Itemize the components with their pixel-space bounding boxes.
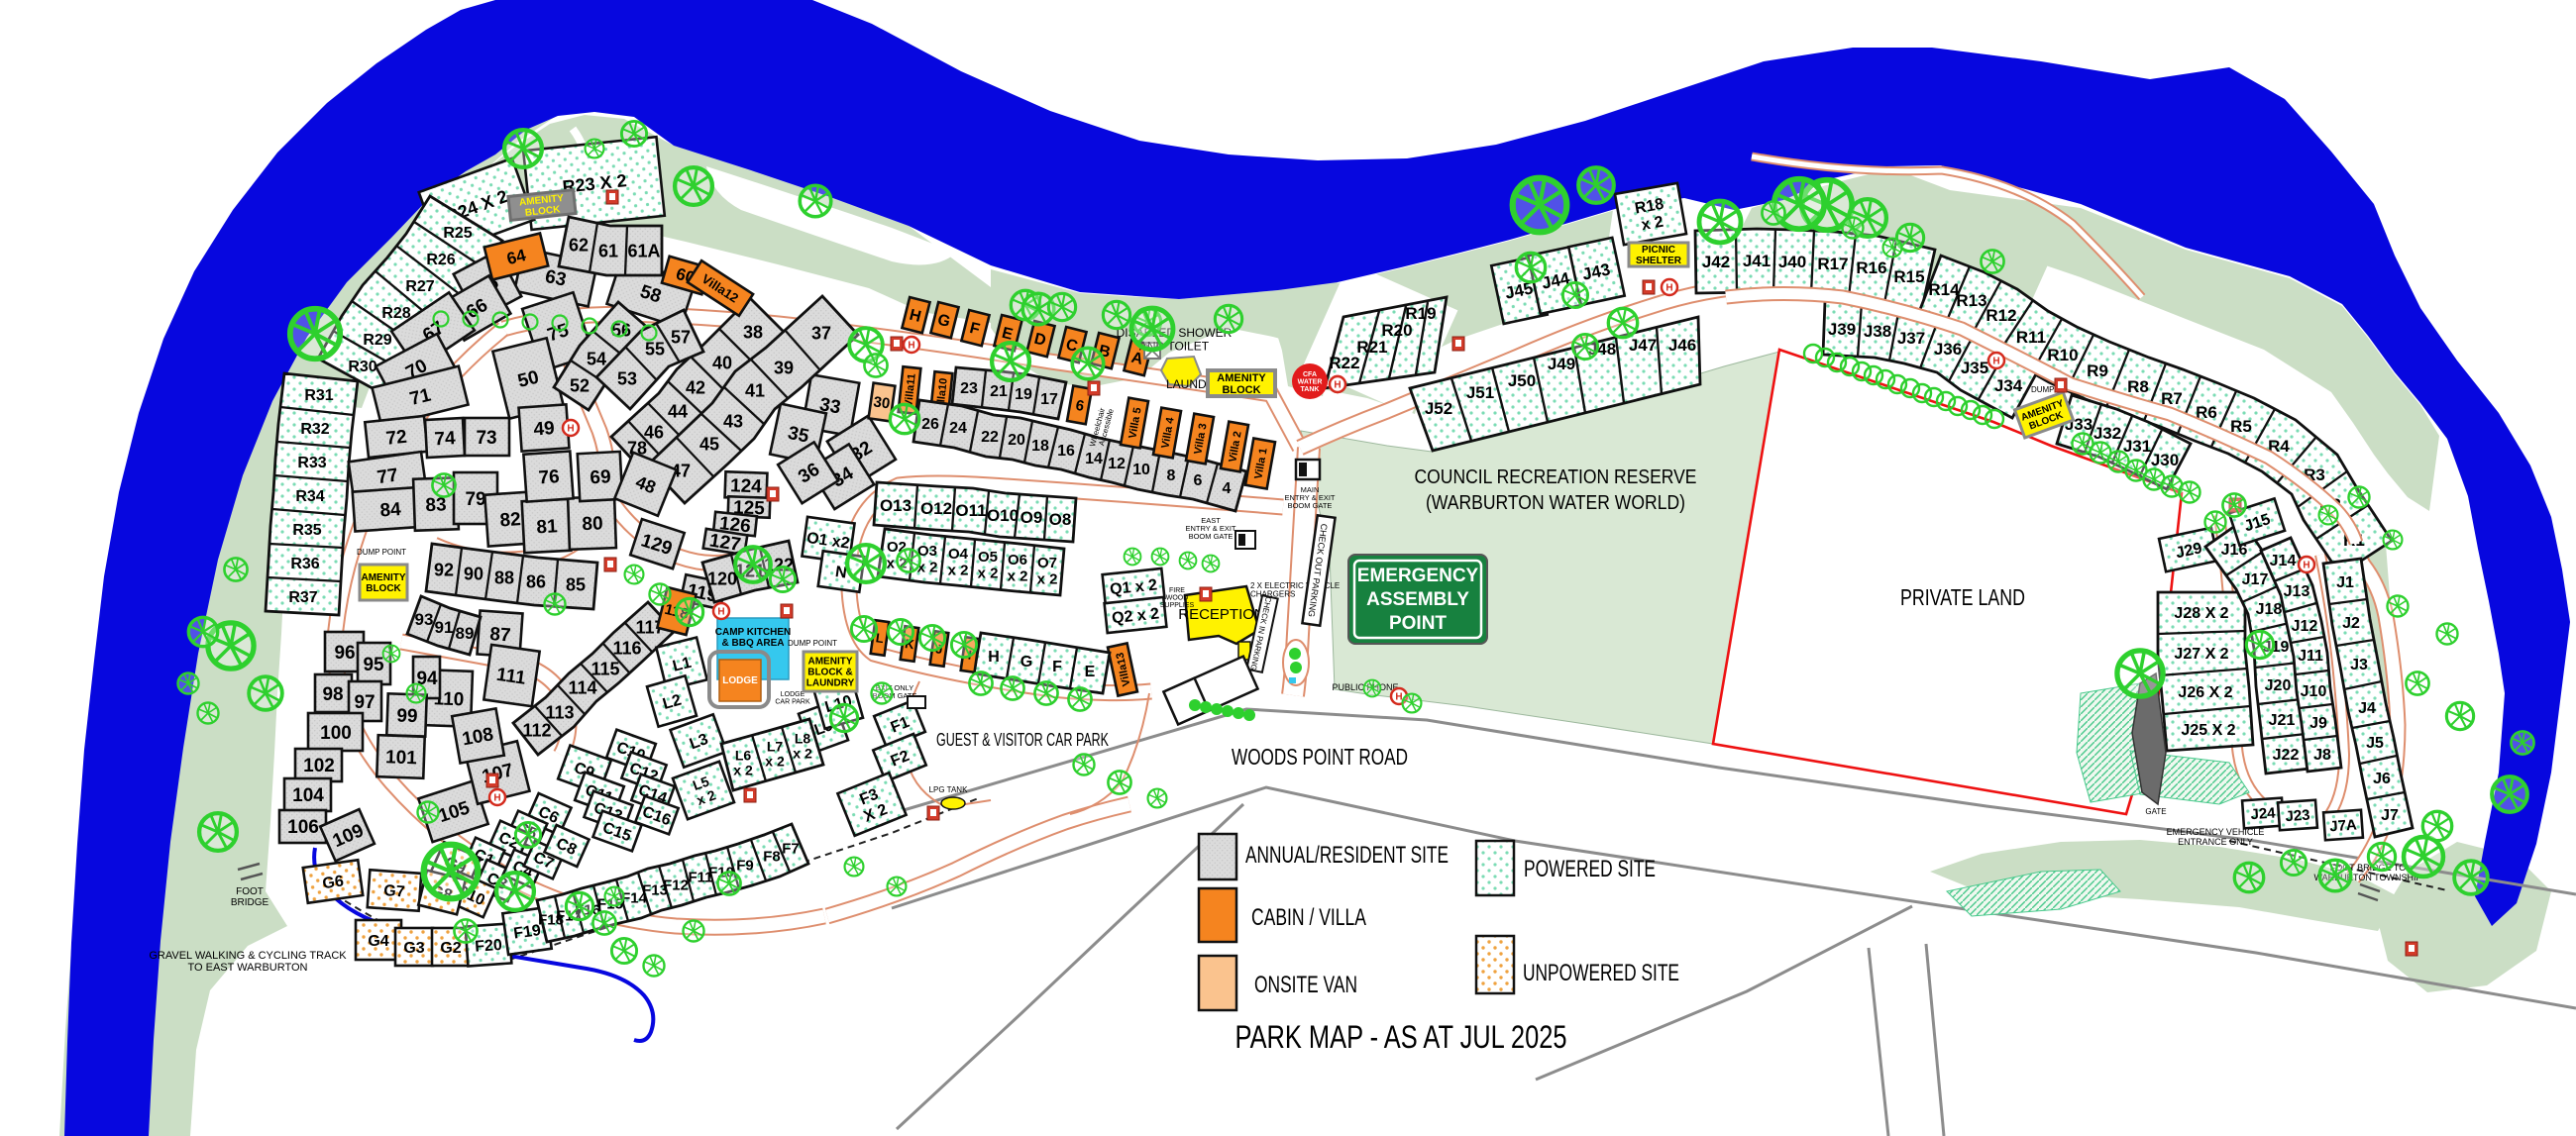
svg-text:112: 112 (522, 721, 551, 741)
svg-text:O13: O13 (880, 496, 912, 515)
svg-text:88: 88 (494, 568, 514, 588)
svg-text:G7: G7 (383, 882, 406, 900)
svg-text:74: 74 (434, 428, 457, 450)
svg-text:R17: R17 (1817, 255, 1848, 273)
svg-text:R34: R34 (295, 488, 324, 505)
svg-text:82: 82 (499, 509, 522, 531)
svg-text:G2: G2 (440, 940, 461, 957)
svg-text:76: 76 (538, 466, 561, 488)
svg-text:J20: J20 (2265, 677, 2292, 694)
svg-text:AMENITYBLOCK: AMENITYBLOCK (519, 193, 566, 220)
svg-text:J21: J21 (2269, 712, 2296, 729)
svg-text:G4: G4 (368, 933, 388, 950)
svg-text:J50: J50 (1508, 371, 1536, 390)
svg-text:61: 61 (598, 242, 618, 261)
svg-text:J24: J24 (2250, 804, 2277, 823)
svg-text:R11: R11 (2016, 328, 2046, 347)
svg-text:J32: J32 (2093, 424, 2121, 443)
svg-text:92: 92 (434, 561, 454, 580)
svg-text:GATE: GATE (2145, 807, 2166, 816)
svg-text:WOODS POINT ROAD: WOODS POINT ROAD (1232, 744, 1408, 770)
svg-text:87: 87 (489, 624, 512, 646)
svg-text:EMERGENCY VEHICLE: EMERGENCY VEHICLE (2167, 827, 2265, 837)
svg-text:12: 12 (1108, 456, 1126, 472)
svg-text:R19: R19 (1405, 304, 1436, 323)
svg-text:G: G (1020, 654, 1032, 671)
svg-text:J27 X 2: J27 X 2 (2174, 646, 2228, 663)
svg-text:O7x 2: O7x 2 (1037, 555, 1058, 588)
svg-text:ASSEMBLY: ASSEMBLY (1366, 589, 1469, 610)
svg-text:23: 23 (960, 380, 978, 397)
svg-text:21: 21 (990, 383, 1008, 400)
svg-text:G3: G3 (403, 940, 424, 957)
svg-text:J6: J6 (2373, 771, 2391, 787)
svg-text:J34: J34 (1994, 376, 2023, 395)
svg-text:H: H (567, 424, 574, 435)
svg-text:BOOM GATE: BOOM GATE (1288, 501, 1333, 510)
svg-text:J12: J12 (2292, 618, 2318, 635)
svg-text:J51: J51 (1466, 383, 1494, 402)
svg-text:J7A: J7A (2329, 816, 2358, 835)
svg-text:89: 89 (456, 624, 475, 643)
svg-text:F20: F20 (475, 937, 503, 956)
svg-text:J4: J4 (2358, 700, 2376, 717)
svg-text:44: 44 (668, 402, 688, 422)
svg-text:(WARBURTON WATER WORLD): (WARBURTON WATER WORLD) (1426, 492, 1685, 514)
svg-text:POWERED SITE: POWERED SITE (1524, 856, 1656, 882)
svg-text:79: 79 (465, 489, 485, 510)
svg-text:O10: O10 (987, 506, 1019, 525)
svg-text:J2: J2 (2342, 615, 2360, 632)
svg-text:38: 38 (743, 323, 763, 343)
svg-text:O5x 2: O5x 2 (978, 549, 999, 582)
svg-text:115: 115 (590, 660, 619, 679)
svg-text:19: 19 (1015, 386, 1032, 403)
svg-text:49: 49 (533, 418, 556, 440)
svg-text:J1: J1 (2336, 574, 2354, 591)
svg-text:R21: R21 (1356, 338, 1387, 357)
svg-text:81: 81 (536, 516, 559, 538)
svg-text:LPG TANK: LPG TANK (929, 785, 968, 794)
svg-text:FIRE: FIRE (1169, 587, 1185, 594)
svg-text:O11: O11 (955, 501, 986, 520)
svg-text:84: 84 (379, 499, 402, 521)
svg-text:J10: J10 (2301, 683, 2327, 700)
svg-text:61A: 61A (627, 242, 660, 261)
svg-text:WOOD: WOOD (1166, 594, 1189, 601)
svg-text:J37: J37 (1897, 329, 1925, 348)
svg-text:TO EAST WARBURTON: TO EAST WARBURTON (187, 962, 307, 974)
svg-text:20: 20 (1008, 432, 1025, 449)
svg-text:J47: J47 (1629, 336, 1657, 355)
svg-text:R14: R14 (1928, 280, 1960, 299)
svg-text:63: 63 (543, 266, 568, 291)
svg-text:J52: J52 (1425, 399, 1452, 418)
svg-text:R35: R35 (292, 522, 321, 539)
svg-text:18: 18 (1031, 438, 1049, 455)
svg-text:43: 43 (723, 412, 743, 432)
svg-text:R27: R27 (405, 278, 434, 295)
svg-text:H: H (2303, 561, 2309, 571)
svg-text:R8: R8 (2127, 377, 2149, 396)
svg-text:G6: G6 (321, 873, 345, 892)
svg-text:CAR PARK: CAR PARK (775, 699, 810, 706)
svg-text:99: 99 (396, 705, 418, 727)
svg-text:AMENITYBLOCK: AMENITYBLOCK (1217, 372, 1266, 396)
svg-text:J35: J35 (1961, 359, 1988, 377)
svg-text:53: 53 (617, 369, 637, 389)
svg-text:GUEST & VISITOR CAR PARK: GUEST & VISITOR CAR PARK (936, 730, 1109, 750)
svg-text:91: 91 (435, 618, 454, 637)
svg-text:77: 77 (376, 465, 399, 488)
svg-text:R26: R26 (426, 252, 455, 268)
svg-text:J7: J7 (2381, 807, 2399, 824)
svg-text:FOOT: FOOT (236, 886, 264, 897)
svg-text:J11: J11 (2298, 648, 2323, 665)
svg-text:J25 X 2: J25 X 2 (2181, 722, 2235, 739)
svg-text:BRIDGE: BRIDGE (231, 897, 269, 908)
svg-text:J26 X 2: J26 X 2 (2178, 684, 2232, 701)
svg-text:54: 54 (587, 350, 606, 369)
svg-text:O12: O12 (920, 499, 952, 518)
svg-text:F9: F9 (736, 857, 754, 874)
svg-text:LODGE: LODGE (781, 691, 805, 698)
svg-text:57: 57 (671, 328, 691, 348)
svg-text:95: 95 (363, 655, 384, 675)
svg-text:DUMP POINT: DUMP POINT (788, 639, 837, 648)
svg-text:PRIVATE LAND: PRIVATE LAND (1900, 584, 2025, 610)
svg-text:80: 80 (582, 513, 603, 535)
svg-text:J40: J40 (1778, 253, 1806, 271)
svg-text:ANNUAL/RESIDENT SITE: ANNUAL/RESIDENT SITE (1245, 842, 1449, 869)
svg-text:E: E (1085, 664, 1096, 680)
svg-text:R33: R33 (297, 455, 326, 471)
svg-text:J36: J36 (1934, 340, 1962, 359)
svg-text:69: 69 (590, 466, 611, 488)
svg-text:F8: F8 (763, 848, 781, 865)
svg-text:J42: J42 (1702, 253, 1730, 271)
svg-text:86: 86 (526, 572, 546, 592)
svg-text:AMENITYBLOCK &LAUNDRY: AMENITYBLOCK &LAUNDRY (806, 657, 855, 689)
svg-text:100: 100 (320, 723, 352, 744)
svg-text:R16: R16 (1856, 258, 1886, 277)
svg-text:124: 124 (730, 475, 763, 497)
svg-text:113: 113 (545, 703, 574, 723)
svg-text:106: 106 (287, 817, 319, 838)
svg-text:J30: J30 (2151, 451, 2179, 469)
svg-text:H: H (988, 649, 1000, 666)
svg-text:SUPPLIES: SUPPLIES (1160, 602, 1195, 609)
svg-text:H: H (908, 341, 914, 352)
svg-text:J17: J17 (2242, 571, 2269, 588)
svg-text:R22: R22 (1329, 354, 1359, 372)
svg-text:101: 101 (385, 747, 418, 769)
svg-text:R29: R29 (363, 332, 391, 349)
svg-text:ONSITE VAN: ONSITE VAN (1254, 972, 1357, 998)
svg-text:H: H (1665, 283, 1672, 294)
svg-text:R20: R20 (1381, 321, 1412, 340)
svg-text:AMENITYBLOCK: AMENITYBLOCK (362, 572, 406, 594)
svg-text:R36: R36 (290, 556, 319, 572)
svg-text:R13: R13 (1956, 291, 1986, 310)
svg-text:104: 104 (292, 785, 324, 806)
svg-text:45: 45 (699, 435, 719, 455)
svg-text:F12: F12 (663, 877, 689, 893)
svg-text:93: 93 (415, 610, 434, 629)
svg-text:62: 62 (569, 236, 589, 256)
svg-text:J31: J31 (2123, 437, 2151, 456)
svg-text:30: 30 (872, 393, 891, 412)
svg-text:102: 102 (303, 756, 335, 776)
svg-text:O6x 2: O6x 2 (1008, 552, 1028, 585)
svg-text:UNPOWERED SITE: UNPOWERED SITE (1523, 960, 1679, 986)
svg-text:90: 90 (464, 565, 483, 584)
svg-text:4: 4 (1223, 480, 1232, 497)
svg-text:55: 55 (645, 340, 665, 360)
svg-text:H: H (1334, 380, 1341, 391)
svg-text:J46: J46 (1668, 336, 1696, 355)
svg-text:J8: J8 (2313, 747, 2331, 764)
svg-text:R25: R25 (443, 225, 472, 242)
svg-text:116: 116 (612, 639, 641, 659)
svg-text:ENTRANCE ONLY: ENTRANCE ONLY (2178, 837, 2253, 847)
svg-text:L7x 2: L7x 2 (765, 738, 785, 769)
svg-text:J13: J13 (2284, 583, 2310, 600)
svg-text:39: 39 (774, 359, 794, 378)
svg-text:H: H (1992, 357, 1999, 367)
svg-text:R15: R15 (1893, 267, 1924, 286)
svg-text:J18: J18 (2256, 601, 2283, 618)
svg-text:6: 6 (1194, 472, 1203, 489)
svg-text:R12: R12 (1986, 306, 2016, 325)
svg-text:CAMP KITCHEN: CAMP KITCHEN (715, 627, 791, 638)
svg-text:85: 85 (566, 575, 586, 595)
svg-text:8: 8 (1167, 467, 1176, 484)
svg-text:& BBQ AREA: & BBQ AREA (722, 638, 785, 649)
svg-text:R9: R9 (2087, 361, 2108, 380)
svg-text:120: 120 (707, 569, 737, 589)
svg-text:R32: R32 (300, 421, 329, 438)
svg-text:L8x 2: L8x 2 (793, 730, 812, 761)
svg-text:J9: J9 (2309, 715, 2327, 732)
svg-text:LODGE: LODGE (722, 675, 758, 686)
svg-text:O9: O9 (1020, 508, 1043, 527)
svg-text:14: 14 (1085, 451, 1103, 467)
svg-text:98: 98 (322, 684, 343, 705)
svg-text:37: 37 (811, 324, 831, 344)
svg-text:22: 22 (981, 429, 999, 446)
svg-text:42: 42 (686, 378, 705, 398)
svg-text:J5: J5 (2366, 735, 2384, 752)
svg-text:O8: O8 (1049, 510, 1072, 529)
svg-text:J49: J49 (1548, 355, 1575, 373)
svg-text:16: 16 (1057, 443, 1075, 460)
svg-text:72: 72 (385, 427, 408, 450)
svg-text:L6x 2: L6x 2 (733, 747, 753, 777)
svg-text:F7: F7 (782, 840, 800, 857)
svg-text:R28: R28 (381, 305, 410, 322)
svg-text:J3: J3 (2350, 657, 2368, 673)
svg-text:POINT: POINT (1389, 613, 1447, 634)
svg-text:R10: R10 (2047, 346, 2078, 364)
svg-text:PICNICSHELTER: PICNICSHELTER (1636, 245, 1682, 266)
svg-text:R37: R37 (288, 589, 317, 606)
svg-text:DUMP POINT: DUMP POINT (357, 548, 406, 557)
svg-text:O4x 2: O4x 2 (948, 546, 969, 579)
svg-text:40: 40 (712, 354, 732, 373)
svg-text:EMERGENCY: EMERGENCY (1357, 566, 1479, 586)
svg-text:96: 96 (334, 643, 355, 664)
svg-text:H: H (717, 607, 724, 618)
svg-text:97: 97 (354, 692, 375, 713)
svg-text:52: 52 (570, 376, 590, 396)
svg-text:J22: J22 (2273, 747, 2300, 764)
svg-text:17: 17 (1040, 391, 1058, 408)
svg-text:10: 10 (1132, 462, 1150, 478)
svg-text:J38: J38 (1864, 322, 1891, 341)
svg-text:24: 24 (949, 420, 967, 437)
svg-text:COUNCIL RECREATION RESERVE: COUNCIL RECREATION RESERVE (1415, 466, 1697, 488)
svg-text:GRAVEL WALKING & CYCLING TRACK: GRAVEL WALKING & CYCLING TRACK (149, 950, 347, 962)
svg-text:26: 26 (921, 416, 939, 433)
svg-text:111: 111 (495, 665, 528, 689)
svg-text:J14: J14 (2270, 553, 2297, 569)
svg-text:BOOM GATE: BOOM GATE (1189, 532, 1234, 541)
svg-text:73: 73 (476, 428, 496, 449)
svg-text:J28 X 2: J28 X 2 (2174, 605, 2228, 622)
svg-text:H: H (493, 793, 500, 804)
svg-text:J23: J23 (2285, 807, 2310, 826)
svg-text:H: H (1395, 692, 1402, 703)
svg-text:PARK MAP - AS AT JUL 2025: PARK MAP - AS AT JUL 2025 (1235, 1019, 1567, 1055)
svg-text:J39: J39 (1828, 320, 1856, 339)
svg-text:R30: R30 (348, 359, 376, 375)
svg-text:CABIN / VILLA: CABIN / VILLA (1251, 904, 1366, 931)
svg-text:114: 114 (568, 678, 596, 698)
svg-text:F: F (1052, 659, 1062, 675)
svg-text:J41: J41 (1743, 252, 1771, 270)
svg-text:41: 41 (745, 381, 765, 401)
svg-text:R31: R31 (304, 387, 333, 404)
